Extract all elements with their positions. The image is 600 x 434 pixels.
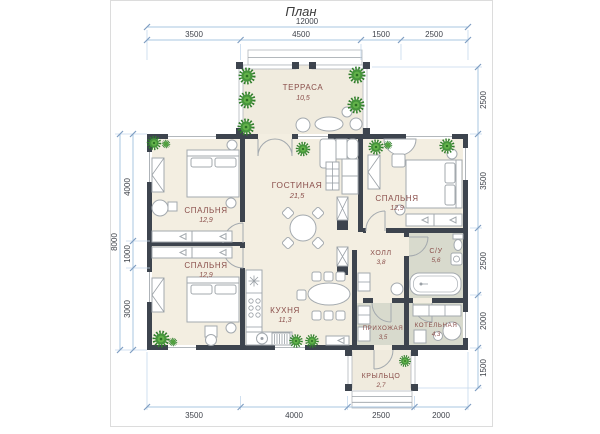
room-label-hall: ХОЛЛ [370,250,391,257]
window [147,272,152,302]
window [275,345,305,350]
counter-icon [413,305,461,316]
room-area-hall: 3,8 [376,259,385,266]
table-icon [392,154,405,167]
room-area-porch: 2,7 [375,382,385,389]
terrace-table-icon [315,117,343,131]
stool-icon [168,202,177,211]
room-area-terrace: 10,5 [296,95,310,102]
window [168,345,196,350]
svg-text:1500: 1500 [372,30,390,39]
porch-steps [352,391,412,408]
svg-text:2500: 2500 [425,30,443,39]
room-label-bedroom3: СПАЛЬНЯ [375,194,418,203]
closet-icon [358,306,370,341]
nightstand-icon [227,140,237,150]
terrace-chair-icon [350,118,362,130]
hood-icon [249,276,260,287]
wardrobe-icon [152,158,164,192]
chair-icon [206,335,217,346]
closet-icon [406,214,462,226]
room-area-bedroom1: 12,9 [199,217,213,224]
wardrobe-icon [368,155,380,189]
wardrobe-icon [152,278,164,312]
room-label-boiler: КОТЕЛЬНАЯ [415,322,458,329]
svg-text:3000: 3000 [123,300,132,318]
closet-icon [358,273,370,291]
toilet-icon [453,234,463,251]
room-entry-furniture [358,306,370,341]
room-label-porch: КРЫЛЬЦО [362,373,401,380]
window [168,134,216,139]
terrace-chair-icon [342,107,352,117]
nightstand-icon [226,323,236,333]
svg-text:3500: 3500 [185,411,203,420]
svg-text:2500: 2500 [372,411,390,420]
svg-text:4500: 4500 [292,30,310,39]
pouf-icon [391,283,403,295]
cabinet-icon [414,330,426,343]
svg-text:1000: 1000 [123,245,132,263]
svg-text:1500: 1500 [479,359,488,377]
svg-text:4000: 4000 [285,411,303,420]
room-area-living: 21,5 [289,191,305,200]
window [147,152,152,182]
kitchen-sink-icon [257,333,268,344]
room-label-living: ГОСТИНАЯ [272,180,323,190]
svg-text:2000: 2000 [432,411,450,420]
room-label-bedroom2: СПАЛЬНЯ [184,261,227,270]
room-area-kitchen: 11,3 [278,317,291,324]
shelf-icon [326,162,339,190]
svg-text:2500: 2500 [479,91,488,109]
terrace-chair-icon [296,118,310,132]
room-area-bedroom2: 12,9 [199,272,213,279]
floor-plan-drawing: План [0,0,600,434]
room-area-bedroom3: 12,9 [390,205,404,212]
room-area-boiler: 4,3 [432,331,441,338]
room-area-entry: 3,5 [379,334,388,341]
bathtub-icon [410,273,461,295]
svg-text:3500: 3500 [185,30,203,39]
closet-icon [326,336,349,345]
closet-icon [152,247,232,258]
dishwasher-icon [272,333,290,345]
closet-icon [152,231,232,242]
svg-text:2000: 2000 [479,312,488,330]
room-label-bedroom1: СПАЛЬНЯ [184,206,227,215]
svg-text:2500: 2500 [479,252,488,270]
room-label-bathroom: С/У [429,248,442,255]
svg-text:8000: 8000 [110,233,119,251]
window [298,134,328,139]
floor-plan-page: План [0,0,600,434]
svg-text:3500: 3500 [479,172,488,190]
svg-text:12000: 12000 [296,17,319,26]
svg-text:4000: 4000 [123,178,132,196]
sink-icon [451,253,462,265]
room-area-bathroom: 5,6 [431,257,440,264]
room-label-entry: ПРИХОЖАЯ [363,325,404,332]
window [463,312,468,338]
bed-icon [187,277,239,322]
room-label-terrace: ТЕРРАСА [283,83,324,92]
room-label-kitchen: КУХНЯ [270,306,300,315]
dressing-table-icon [152,200,168,216]
window [406,134,452,139]
window [463,148,468,180]
bed-icon [187,150,239,197]
